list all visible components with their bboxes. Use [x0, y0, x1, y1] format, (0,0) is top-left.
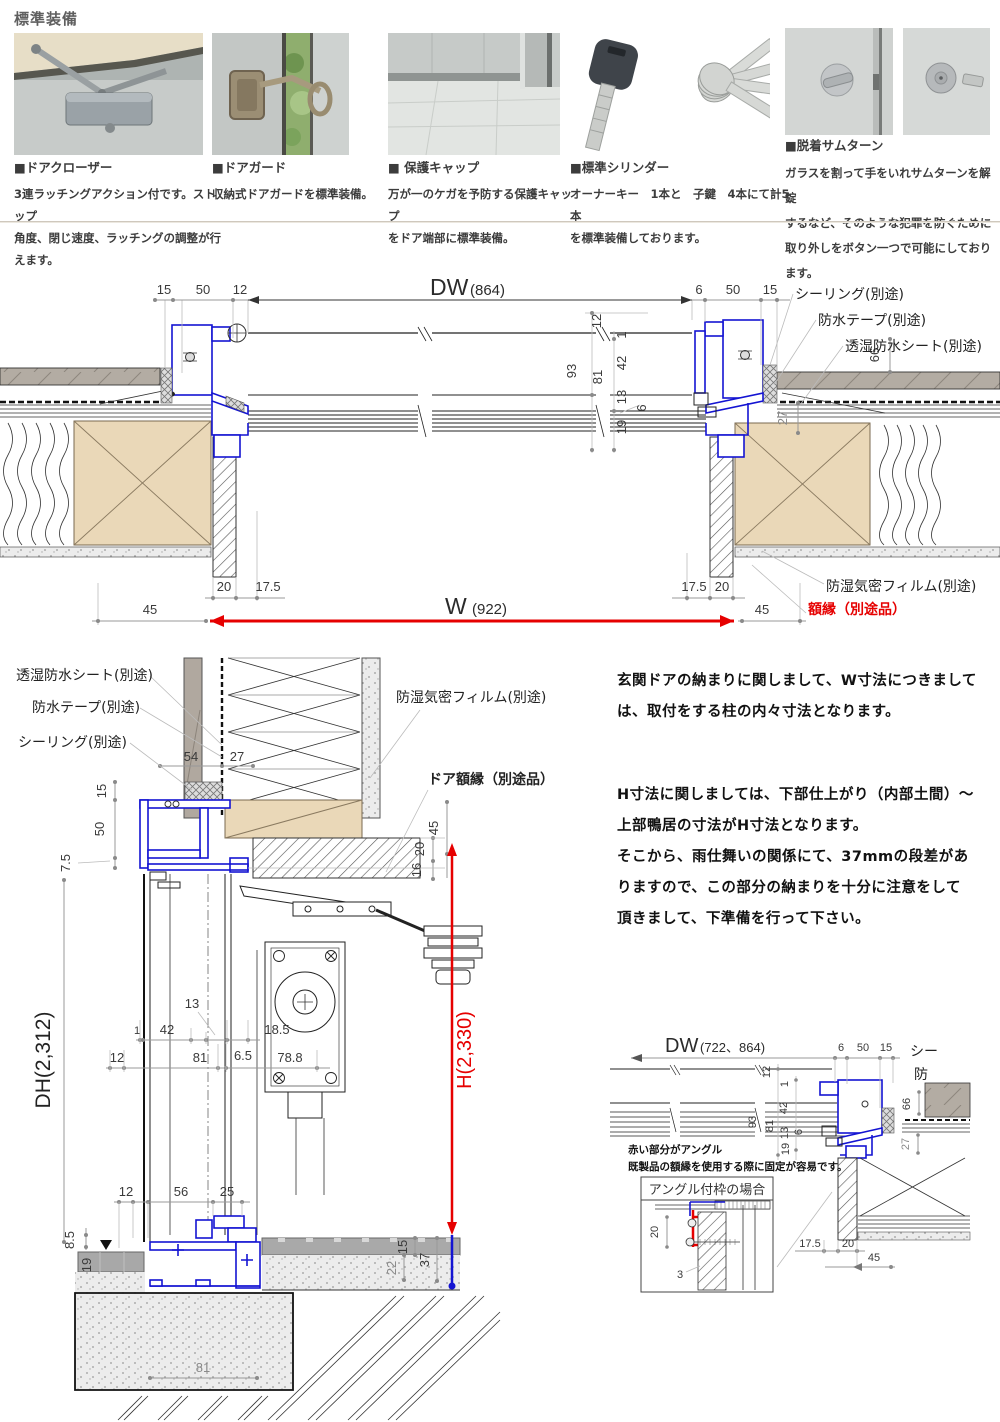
- plan-section-drawing: DW (864) 15 50 12 6 50 15 12 1 42 13 6 1…: [0, 253, 1000, 653]
- caption-protection-cap: ■ 保護キャップ 万が一のケガを予防する保護キャップ をドア端部に標準装備。: [388, 157, 576, 249]
- dim-81-foundation: 81: [196, 1360, 210, 1375]
- dim-12: 12: [761, 1066, 773, 1078]
- dim-81: 81: [764, 1120, 776, 1132]
- dim-16: 16: [409, 863, 424, 877]
- w-dimension-value: (922): [472, 601, 507, 618]
- box-dim-20: 20: [649, 1226, 661, 1238]
- dim-15-right: 15: [763, 282, 777, 297]
- dim-27: 27: [775, 411, 790, 425]
- dim-12-left: 12: [233, 282, 247, 297]
- note-line: 頂きまして、下準備を行って下さい。: [617, 904, 999, 935]
- dim-42: 42: [778, 1102, 790, 1114]
- note-line: りますので、この部分の納まりを十分に注意をして: [617, 873, 999, 904]
- dim-17-5-bottom-right: 17.5: [681, 579, 706, 594]
- door-casing-leader-label: ドア額縁（別途品）: [428, 771, 554, 788]
- dim-50-left: 50: [196, 282, 210, 297]
- item-name: ■ 保護キャップ: [388, 157, 576, 176]
- dim-13: 13: [614, 390, 629, 404]
- vsec-door-closer: [240, 886, 482, 1195]
- item-name: ■脱着サムターン: [785, 135, 1000, 154]
- moisture-sheet-leader-label: 透湿防水シート(別途): [845, 338, 982, 355]
- dim-20: 20: [842, 1238, 854, 1250]
- vapor-film-leader-label: 防湿気密フィルム(別途): [826, 578, 976, 595]
- waterproof-tape-leader-label: 防水テープ(別途): [32, 699, 140, 716]
- detail-jamb: [820, 1080, 894, 1158]
- note-line: そこから、雨仕舞いの関係にて、37mmの段差があ: [617, 842, 999, 873]
- vsec-wall: [184, 658, 420, 878]
- dim-45-bottom-left: 45: [143, 602, 157, 617]
- dim-1: 1: [779, 1081, 791, 1087]
- dim-1: 1: [134, 1025, 140, 1037]
- item-name: ■ドアガード: [212, 157, 388, 176]
- dim-93: 93: [747, 1116, 759, 1128]
- dim-6-right: 6: [695, 282, 702, 297]
- dim-6: 6: [838, 1042, 844, 1054]
- item-name: ■ドアクローザー: [14, 157, 226, 176]
- dim-20-bottom-right: 20: [715, 579, 729, 594]
- vsec-threshold-floor: [75, 1216, 500, 1420]
- item-name: ■標準シリンダー: [570, 157, 798, 176]
- truncated-tape-label: 防: [914, 1067, 928, 1083]
- dim-27: 27: [230, 749, 244, 764]
- angle-note-line1: 赤い部分がアングル: [628, 1143, 723, 1156]
- dim-7-5: 7.5: [58, 854, 73, 872]
- dim-54: 54: [184, 749, 198, 764]
- dim-78-8: 78.8: [277, 1050, 302, 1065]
- dim-22: 22: [384, 1261, 399, 1275]
- dim-1: 1: [614, 331, 629, 338]
- note-line: は、取付をする柱の内々寸法となります。: [617, 697, 999, 728]
- thumbturn-photo-1: [785, 28, 893, 135]
- dim-15-tile: 15: [395, 1240, 410, 1254]
- frame-casing-label: 額縁（別途品）: [807, 601, 906, 618]
- dim-19: 19: [614, 420, 629, 434]
- detail-dw-value: (722、864): [700, 1040, 765, 1055]
- plan-left-pillar: [213, 437, 236, 577]
- plan-right-pillar: [710, 437, 733, 577]
- dim-17-5-bottom-left: 17.5: [255, 579, 280, 594]
- dim-56: 56: [174, 1184, 188, 1199]
- h-dimension-label: H(2,330): [454, 1011, 476, 1089]
- dim-20: 20: [412, 842, 427, 856]
- plan-left-wall: [0, 368, 211, 557]
- thumbturn-photo-2: [903, 28, 990, 135]
- dim-12: 12: [110, 1050, 124, 1065]
- item-desc: するなど、そのような犯罪を防ぐために: [785, 211, 1000, 236]
- dim-15-left: 15: [157, 282, 171, 297]
- sealing-leader-label: シーリング(別途): [795, 286, 904, 303]
- angle-box-title: アングル付枠の場合: [649, 1182, 765, 1197]
- moisture-sheet-leader-label: 透湿防水シート(別途): [16, 667, 153, 684]
- dim-25: 25: [220, 1184, 234, 1199]
- dim-81: 81: [590, 370, 605, 384]
- dim-18-5: 18.5: [264, 1022, 289, 1037]
- installation-notes: 玄関ドアの納まりに関しまして、W寸法につきまして は、取付をする柱の内々寸法とな…: [617, 666, 999, 935]
- note-line: 玄関ドアの納まりに関しまして、W寸法につきまして: [617, 666, 999, 697]
- note-line: H寸法に関しましては、下部仕上がり（内部土間）～: [617, 780, 999, 811]
- sealing-leader-label: シーリング(別途): [18, 734, 127, 751]
- caption-cylinder: ■標準シリンダー オーナーキー 1本と 子鍵 4本にて計5本 を標準装備しており…: [570, 157, 798, 249]
- dim-6b: 6: [793, 1129, 805, 1135]
- angle-note-line2: 既製品の額縁を使用する際に固定が容易です。: [628, 1160, 847, 1173]
- dim-37-step: 37: [417, 1253, 432, 1267]
- box-dim-3: 3: [677, 1269, 683, 1281]
- plan-door-leaf: [248, 327, 706, 437]
- dim-50-right: 50: [726, 282, 740, 297]
- vsec-threshold-profile: [150, 1216, 260, 1288]
- dim-19: 19: [780, 1143, 792, 1155]
- dim-81: 81: [193, 1050, 207, 1065]
- dim-8-5: 8.5: [62, 1231, 77, 1249]
- catalog-page: 標準装備: [0, 0, 1000, 1422]
- dw-dimension-value: (864): [470, 282, 505, 299]
- dim-50: 50: [857, 1042, 869, 1054]
- item-desc: ガラスを割って手をいれサ厶ターンを解錠: [785, 161, 1000, 211]
- dim-15: 15: [94, 784, 109, 798]
- section-divider: [0, 221, 1000, 223]
- dim-12-bottom: 12: [119, 1184, 133, 1199]
- note-line: 上部鴨居の寸法がH寸法となります。: [617, 811, 999, 842]
- dim-13: 13: [779, 1127, 791, 1139]
- dim-12: 12: [589, 314, 604, 328]
- dim-50: 50: [92, 822, 107, 836]
- page-title: 標準装備: [14, 8, 78, 29]
- waterproof-tape-leader-label: 防水テープ(別途): [818, 312, 926, 329]
- dim-93: 93: [564, 364, 579, 378]
- item-desc: を標準装備しております。: [570, 227, 798, 249]
- dim-17-5: 17.5: [799, 1238, 820, 1250]
- dim-45-bottom-right: 45: [755, 602, 769, 617]
- truncated-sealing-label: シー: [910, 1044, 938, 1060]
- angle-frame-detail-drawing: DW (722、864) 6 50 15 シー 防 12 1 42 93 81 …: [610, 1020, 1000, 1320]
- dim-15: 15: [880, 1042, 892, 1054]
- door-guard-photo: [212, 33, 349, 155]
- vapor-film-leader-label: 防湿気密フィルム(別途): [396, 689, 546, 706]
- detail-door-leaf: [610, 1065, 850, 1136]
- item-desc: をドア端部に標準装備。: [388, 227, 576, 249]
- dim-45: 45: [426, 821, 441, 835]
- dim-19: 19: [79, 1258, 94, 1272]
- protection-cap-photo: [388, 33, 560, 155]
- dim-42: 42: [160, 1022, 174, 1037]
- dim-42: 42: [614, 356, 629, 370]
- cylinder-keys-photo: [570, 36, 770, 160]
- caption-door-guard: ■ドアガード 収納式ドアガードを標準装備。: [212, 157, 388, 205]
- dim-66: 66: [901, 1098, 913, 1110]
- item-desc: 収納式ドアガードを標準装備。: [212, 183, 388, 205]
- dim-27: 27: [900, 1138, 912, 1150]
- dim-6-5: 6.5: [234, 1048, 252, 1063]
- dh-dimension-label: DH(2,312): [32, 1012, 55, 1109]
- dim-20-bottom-left: 20: [217, 579, 231, 594]
- dim-13: 13: [185, 996, 199, 1011]
- door-closer-photo: [14, 33, 203, 155]
- vertical-section-drawing: 透湿防水シート(別途) 防水テープ(別途) シーリング(別途) 防湿気密フィルム…: [0, 650, 610, 1422]
- w-dimension-label: W: [445, 593, 467, 619]
- detail-dw-label: DW: [665, 1035, 698, 1057]
- dim-6: 6: [634, 404, 649, 411]
- dw-dimension-label: DW: [430, 274, 469, 300]
- dim-45: 45: [868, 1252, 880, 1264]
